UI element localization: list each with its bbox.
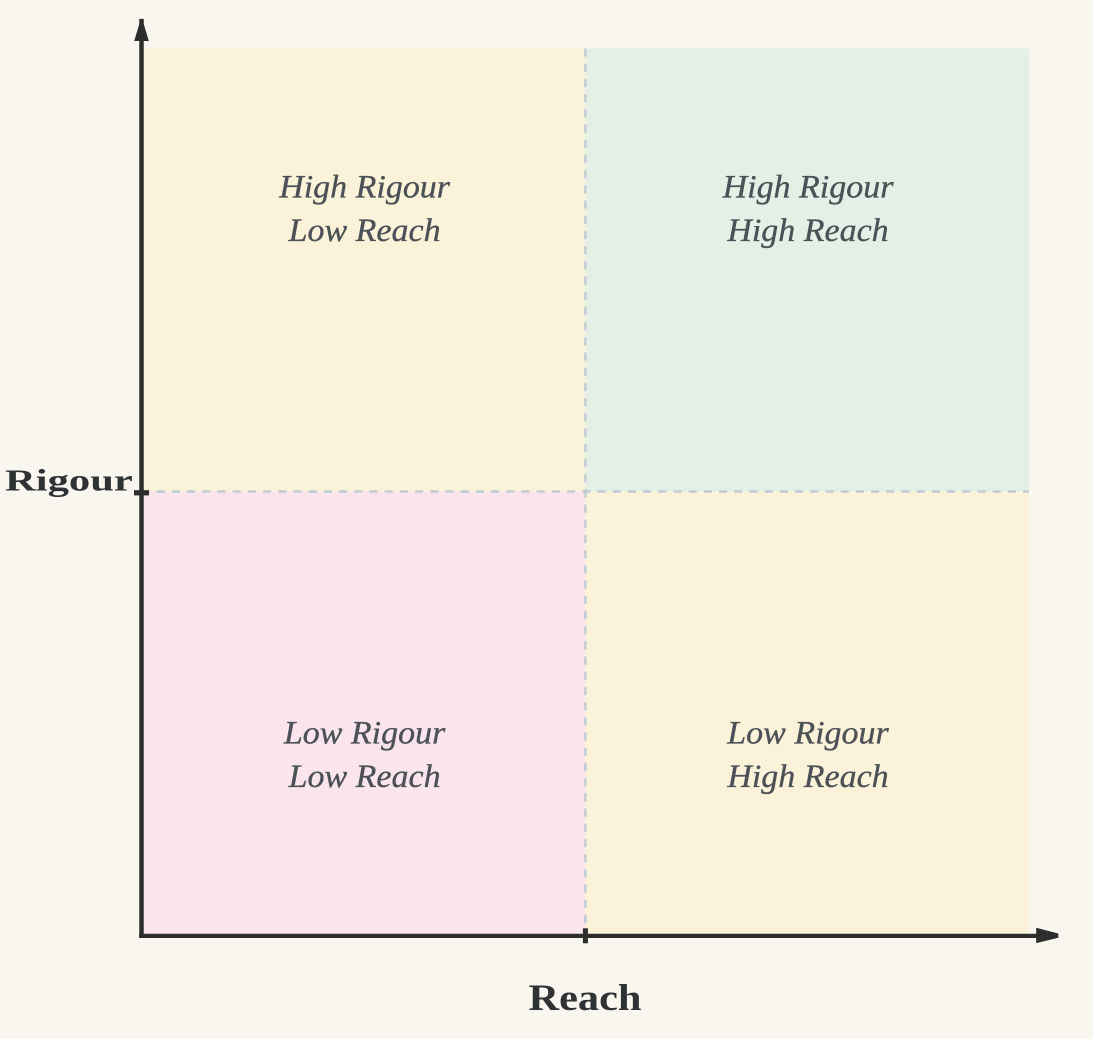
svg-text:Low Reach: Low Reach (288, 758, 441, 794)
svg-text:Rigour: Rigour (5, 464, 133, 498)
svg-text:High Reach: High Reach (726, 212, 888, 248)
svg-text:High Rigour: High Rigour (278, 169, 451, 205)
svg-text:High Rigour: High Rigour (722, 169, 895, 205)
svg-text:Low Rigour: Low Rigour (283, 715, 446, 751)
svg-text:Low Reach: Low Reach (288, 212, 441, 248)
svg-text:Low Rigour: Low Rigour (726, 715, 889, 751)
svg-text:Reach: Reach (528, 976, 641, 1018)
svg-text:High Reach: High Reach (726, 758, 888, 794)
